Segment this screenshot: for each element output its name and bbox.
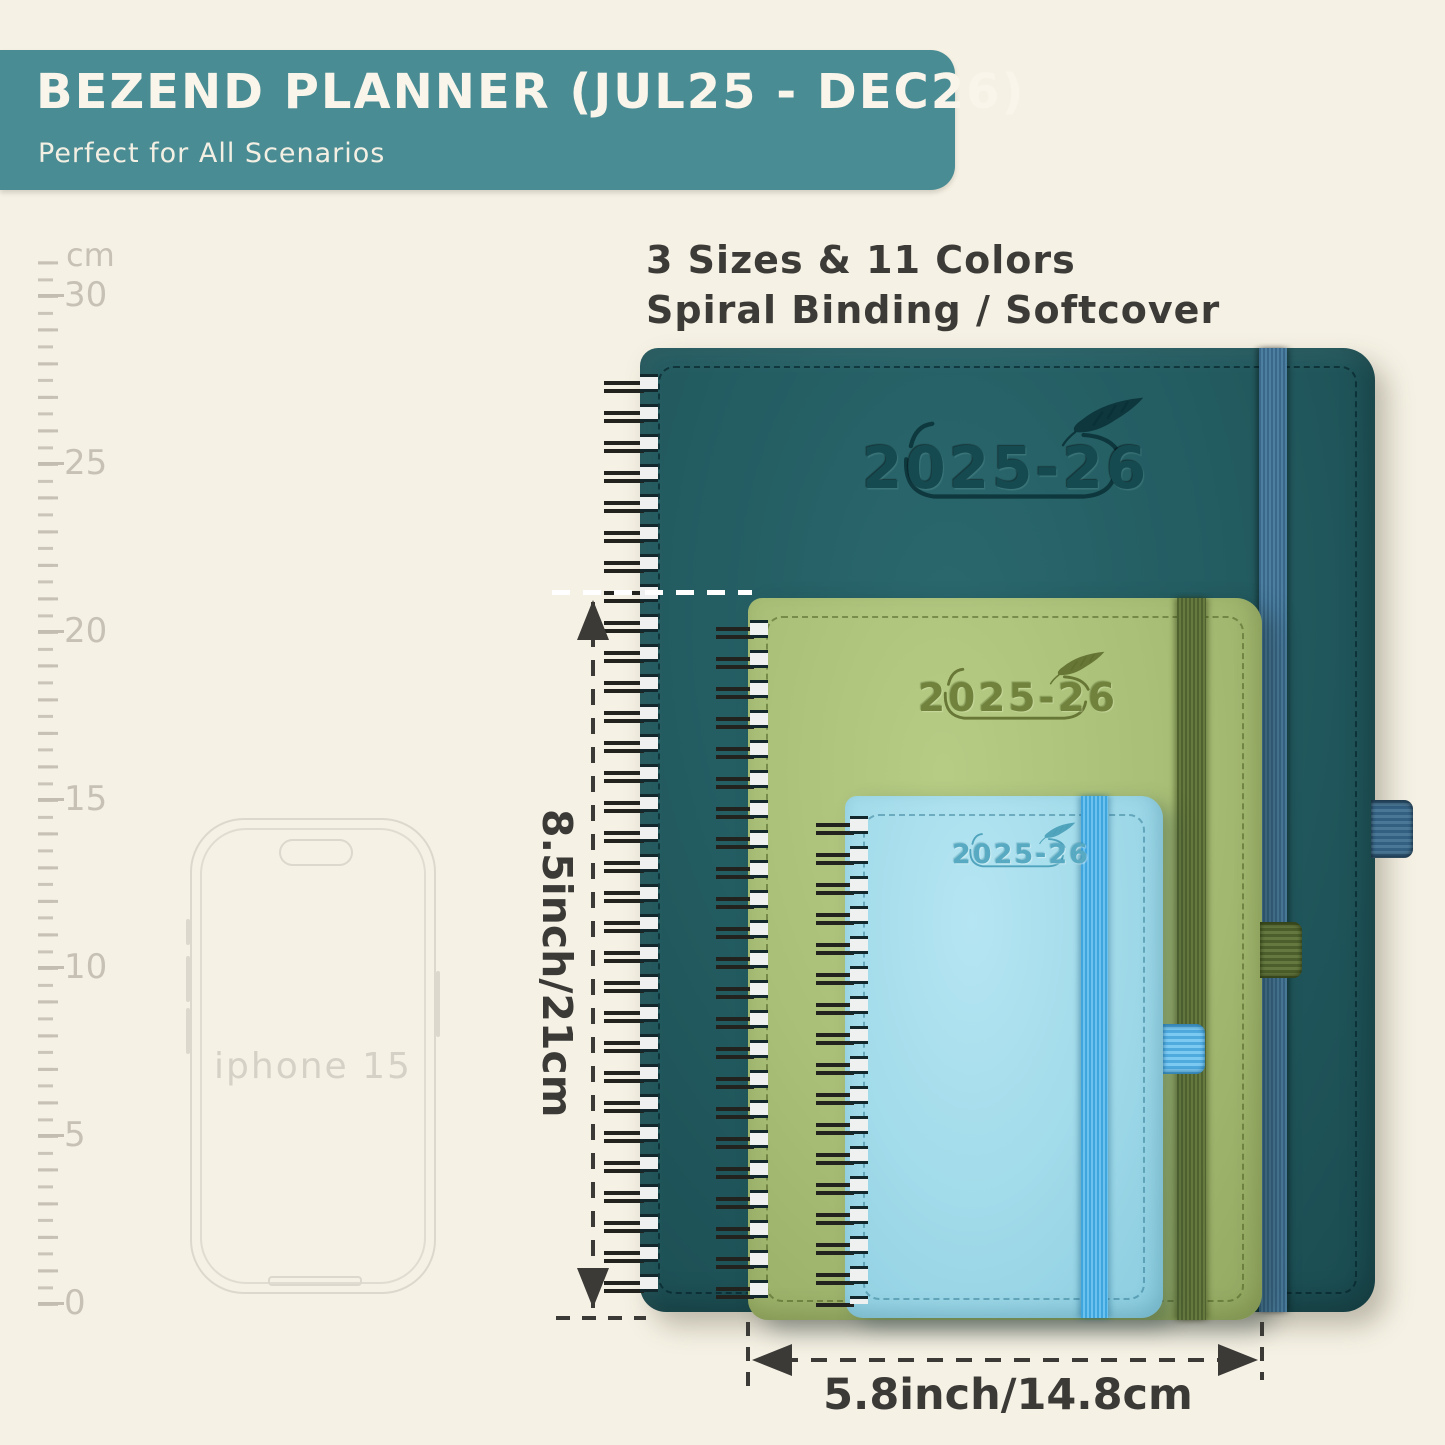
- planner-small-logo: 2025-26: [952, 820, 1078, 882]
- planner-medium-year: 2025-26: [918, 676, 1085, 721]
- ruler-tick-10: [38, 966, 64, 969]
- ruler-label-10: 10: [64, 946, 134, 988]
- iphone-dynamic-island: [279, 839, 353, 866]
- planner-large-spiral-binding: [604, 374, 660, 1308]
- planner-medium-spiral-binding: [716, 620, 772, 1312]
- width-left-reference-line: [746, 1322, 750, 1388]
- planner-large-pen-loop: [1371, 800, 1413, 858]
- feature-line-sizes: 3 Sizes & 11 Colors: [646, 238, 1076, 282]
- width-dimension-label: 5.8inch/14.8cm: [808, 1370, 1208, 1420]
- spiral-clips: [750, 616, 768, 1308]
- iphone-label: iphone 15: [192, 1046, 434, 1087]
- planner-medium-logo: 2025-26: [918, 648, 1108, 742]
- ruler-label-25: 25: [64, 442, 134, 484]
- cm-ruler: cm 30 25 20 15 10 5 0: [38, 250, 158, 1312]
- planner-medium-elastic-band: [1177, 598, 1206, 1320]
- spiral-clips: [640, 370, 658, 1304]
- height-reference-dashed-line: [552, 590, 752, 595]
- spiral-wires: [716, 620, 754, 1312]
- arrow-up-icon: [577, 600, 609, 640]
- page-subtitle: Perfect for All Scenarios: [38, 138, 385, 169]
- ruler-tick-20: [38, 630, 64, 633]
- feature-line-binding: Spiral Binding / Softcover: [646, 288, 1220, 332]
- ruler-label-0: 0: [64, 1282, 134, 1324]
- iphone-volume-down-button: [186, 1008, 190, 1054]
- ruler-label-30: 30: [64, 274, 134, 316]
- height-bottom-reference-line: [556, 1316, 646, 1320]
- spiral-wires: [816, 816, 854, 1308]
- page-title: BEZEND PLANNER (JUL25 - DEC26): [36, 64, 1026, 120]
- iphone-speaker-slot: [268, 1276, 362, 1286]
- ruler-label-15: 15: [64, 778, 134, 820]
- iphone-mute-switch: [186, 919, 190, 945]
- product-image-stage: BEZEND PLANNER (JUL25 - DEC26) Perfect f…: [0, 0, 1445, 1445]
- ruler-unit-label: cm: [66, 236, 115, 274]
- iphone-volume-up-button: [186, 956, 190, 1002]
- spiral-clips: [850, 812, 868, 1304]
- ruler-tick-25: [38, 462, 64, 465]
- iphone-outline: iphone 15: [190, 818, 436, 1294]
- height-dimension-line: [591, 602, 595, 1308]
- ruler-cm-ticks: [38, 250, 58, 1308]
- planner-large-logo: 2025-26: [862, 392, 1152, 532]
- arrow-down-icon: [577, 1268, 609, 1308]
- planner-small-spiral-binding: [816, 816, 872, 1308]
- planner-small-elastic-band: [1081, 796, 1108, 1318]
- ruler-tick-0: [38, 1302, 64, 1305]
- width-dimension-line: [782, 1358, 1222, 1362]
- ruler-label-20: 20: [64, 610, 134, 652]
- planner-large-year: 2025-26: [862, 434, 1117, 502]
- planner-small-pen-loop: [1163, 1024, 1205, 1074]
- ruler-label-5: 5: [64, 1114, 134, 1156]
- ruler-tick-30: [38, 294, 64, 297]
- planner-large-elastic-band: [1259, 348, 1287, 1312]
- height-dimension-label: 8.5inch/21cm: [533, 809, 581, 1109]
- ruler-tick-15: [38, 798, 64, 801]
- planner-medium-pen-loop: [1260, 922, 1302, 978]
- ruler-tick-5: [38, 1134, 64, 1137]
- spiral-wires: [604, 374, 644, 1308]
- arrow-left-icon: [752, 1344, 792, 1376]
- width-right-reference-line: [1260, 1322, 1264, 1380]
- iphone-power-button: [436, 971, 440, 1037]
- planner-small-year: 2025-26: [952, 839, 1063, 870]
- title-banner: BEZEND PLANNER (JUL25 - DEC26) Perfect f…: [0, 50, 955, 190]
- arrow-right-icon: [1218, 1344, 1258, 1376]
